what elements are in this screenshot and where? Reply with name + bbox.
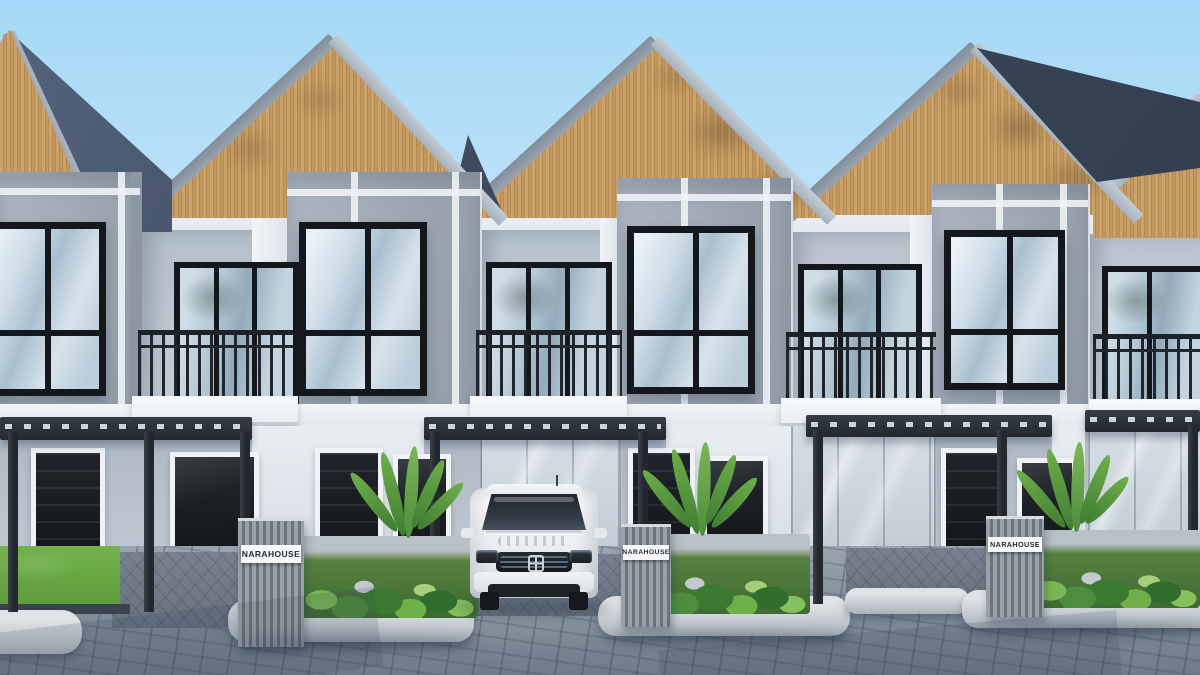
car-headlight-left xyxy=(476,550,498,563)
balcony-railing xyxy=(786,332,936,405)
car-lower-intake xyxy=(488,584,580,597)
honda-h-badge xyxy=(528,555,544,572)
garden-bed xyxy=(1030,530,1200,608)
tower-window xyxy=(299,222,427,396)
sign-plate: NARAHOUSE xyxy=(988,537,1041,552)
narahouse-sign-pillar: NARAHOUSE xyxy=(621,524,671,627)
curb-shadow xyxy=(610,632,850,645)
car-hood-vents xyxy=(498,536,570,546)
pergola-post xyxy=(813,430,823,604)
curb xyxy=(845,588,969,614)
balcony-railing xyxy=(138,330,293,405)
car-mirror-right xyxy=(594,528,607,538)
tower-trim xyxy=(763,178,770,424)
car-wheel-left xyxy=(480,592,499,610)
sign-plate: NARAHOUSE xyxy=(241,545,302,563)
architectural-render-scene: NARAHOUSE NARAHOUSE NARAHOUSE xyxy=(0,0,1200,675)
tower-trim xyxy=(118,172,125,424)
carport-pergola xyxy=(424,417,666,440)
tower-window xyxy=(944,230,1065,390)
shrub-cluster xyxy=(1030,530,1200,608)
balcony-railing xyxy=(1093,334,1200,405)
car-antenna xyxy=(556,475,558,486)
carport-pergola xyxy=(806,415,1052,437)
car xyxy=(464,484,604,616)
narahouse-sign-pillar: NARAHOUSE xyxy=(986,516,1044,617)
pergola-post xyxy=(8,432,18,612)
tower-window xyxy=(627,226,755,394)
car-headlight-right xyxy=(570,550,592,563)
sign-plate: NARAHOUSE xyxy=(623,545,669,560)
front-lawn xyxy=(0,546,120,610)
curb-shadow xyxy=(240,636,480,650)
carport-pergola xyxy=(0,417,252,440)
car-cowl xyxy=(486,530,582,533)
tower-window xyxy=(0,222,106,396)
car-mirror-left xyxy=(461,528,474,538)
windshield-reflection xyxy=(494,497,574,502)
tower-trim xyxy=(452,172,459,424)
carport-pergola xyxy=(1085,410,1200,432)
pergola-post xyxy=(144,432,154,612)
balcony-railing xyxy=(476,330,622,405)
curb-shadow xyxy=(980,624,1200,636)
car-wheel-right xyxy=(569,592,588,610)
